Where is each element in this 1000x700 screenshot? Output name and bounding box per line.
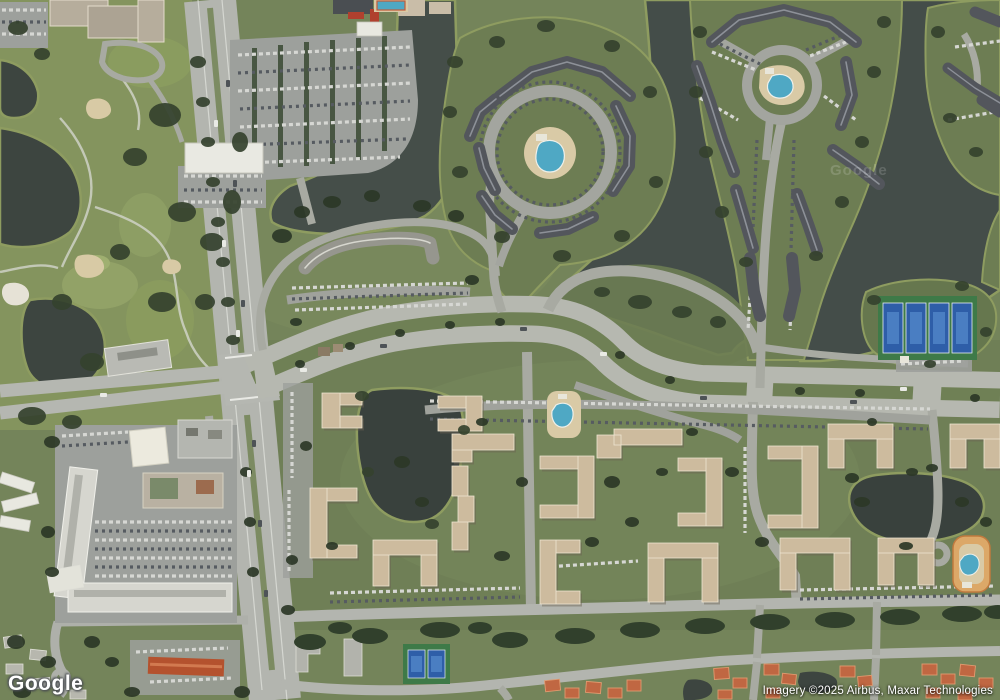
satellite-map-canvas[interactable]: Google Google Imagery ©2025 Airbus, Maxa… [0,0,1000,700]
pool-southwest [547,391,581,438]
pool-cluster-b [759,65,805,105]
pool-top-edge [374,0,408,12]
red-roof-building [148,657,225,677]
map-attribution: Imagery ©2025 Airbus, Maxar Technologies [763,685,993,697]
satellite-imagery [0,0,1000,700]
tile-watermark-text: Google [830,162,888,179]
tennis-courts-bottom [403,644,450,684]
pool-southeast [953,536,990,592]
google-logo[interactable]: Google [8,672,83,696]
office-building [185,143,263,173]
pool-island-a [524,127,576,179]
tennis-courts-right [878,296,977,363]
